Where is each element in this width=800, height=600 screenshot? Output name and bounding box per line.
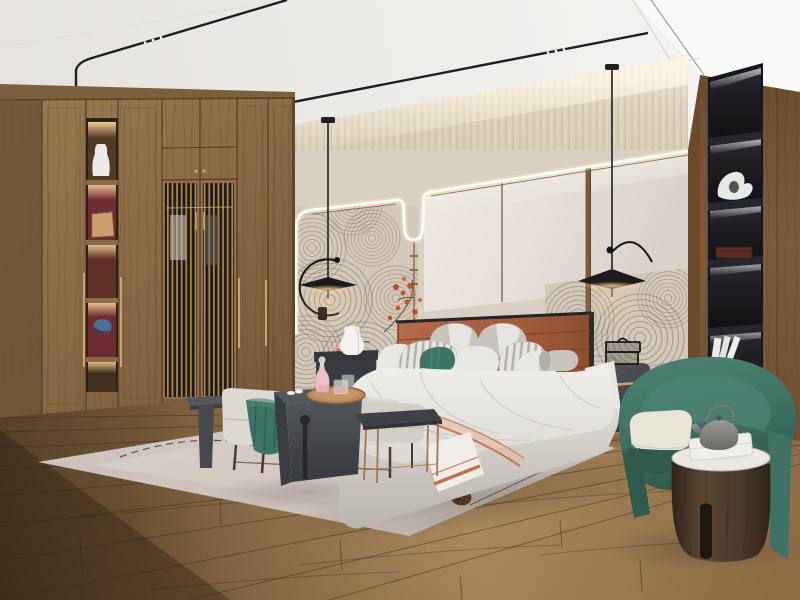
bedroom-render: Modern bedroom render: wooden wardrobe w… bbox=[0, 0, 800, 600]
scene bbox=[0, 0, 800, 600]
